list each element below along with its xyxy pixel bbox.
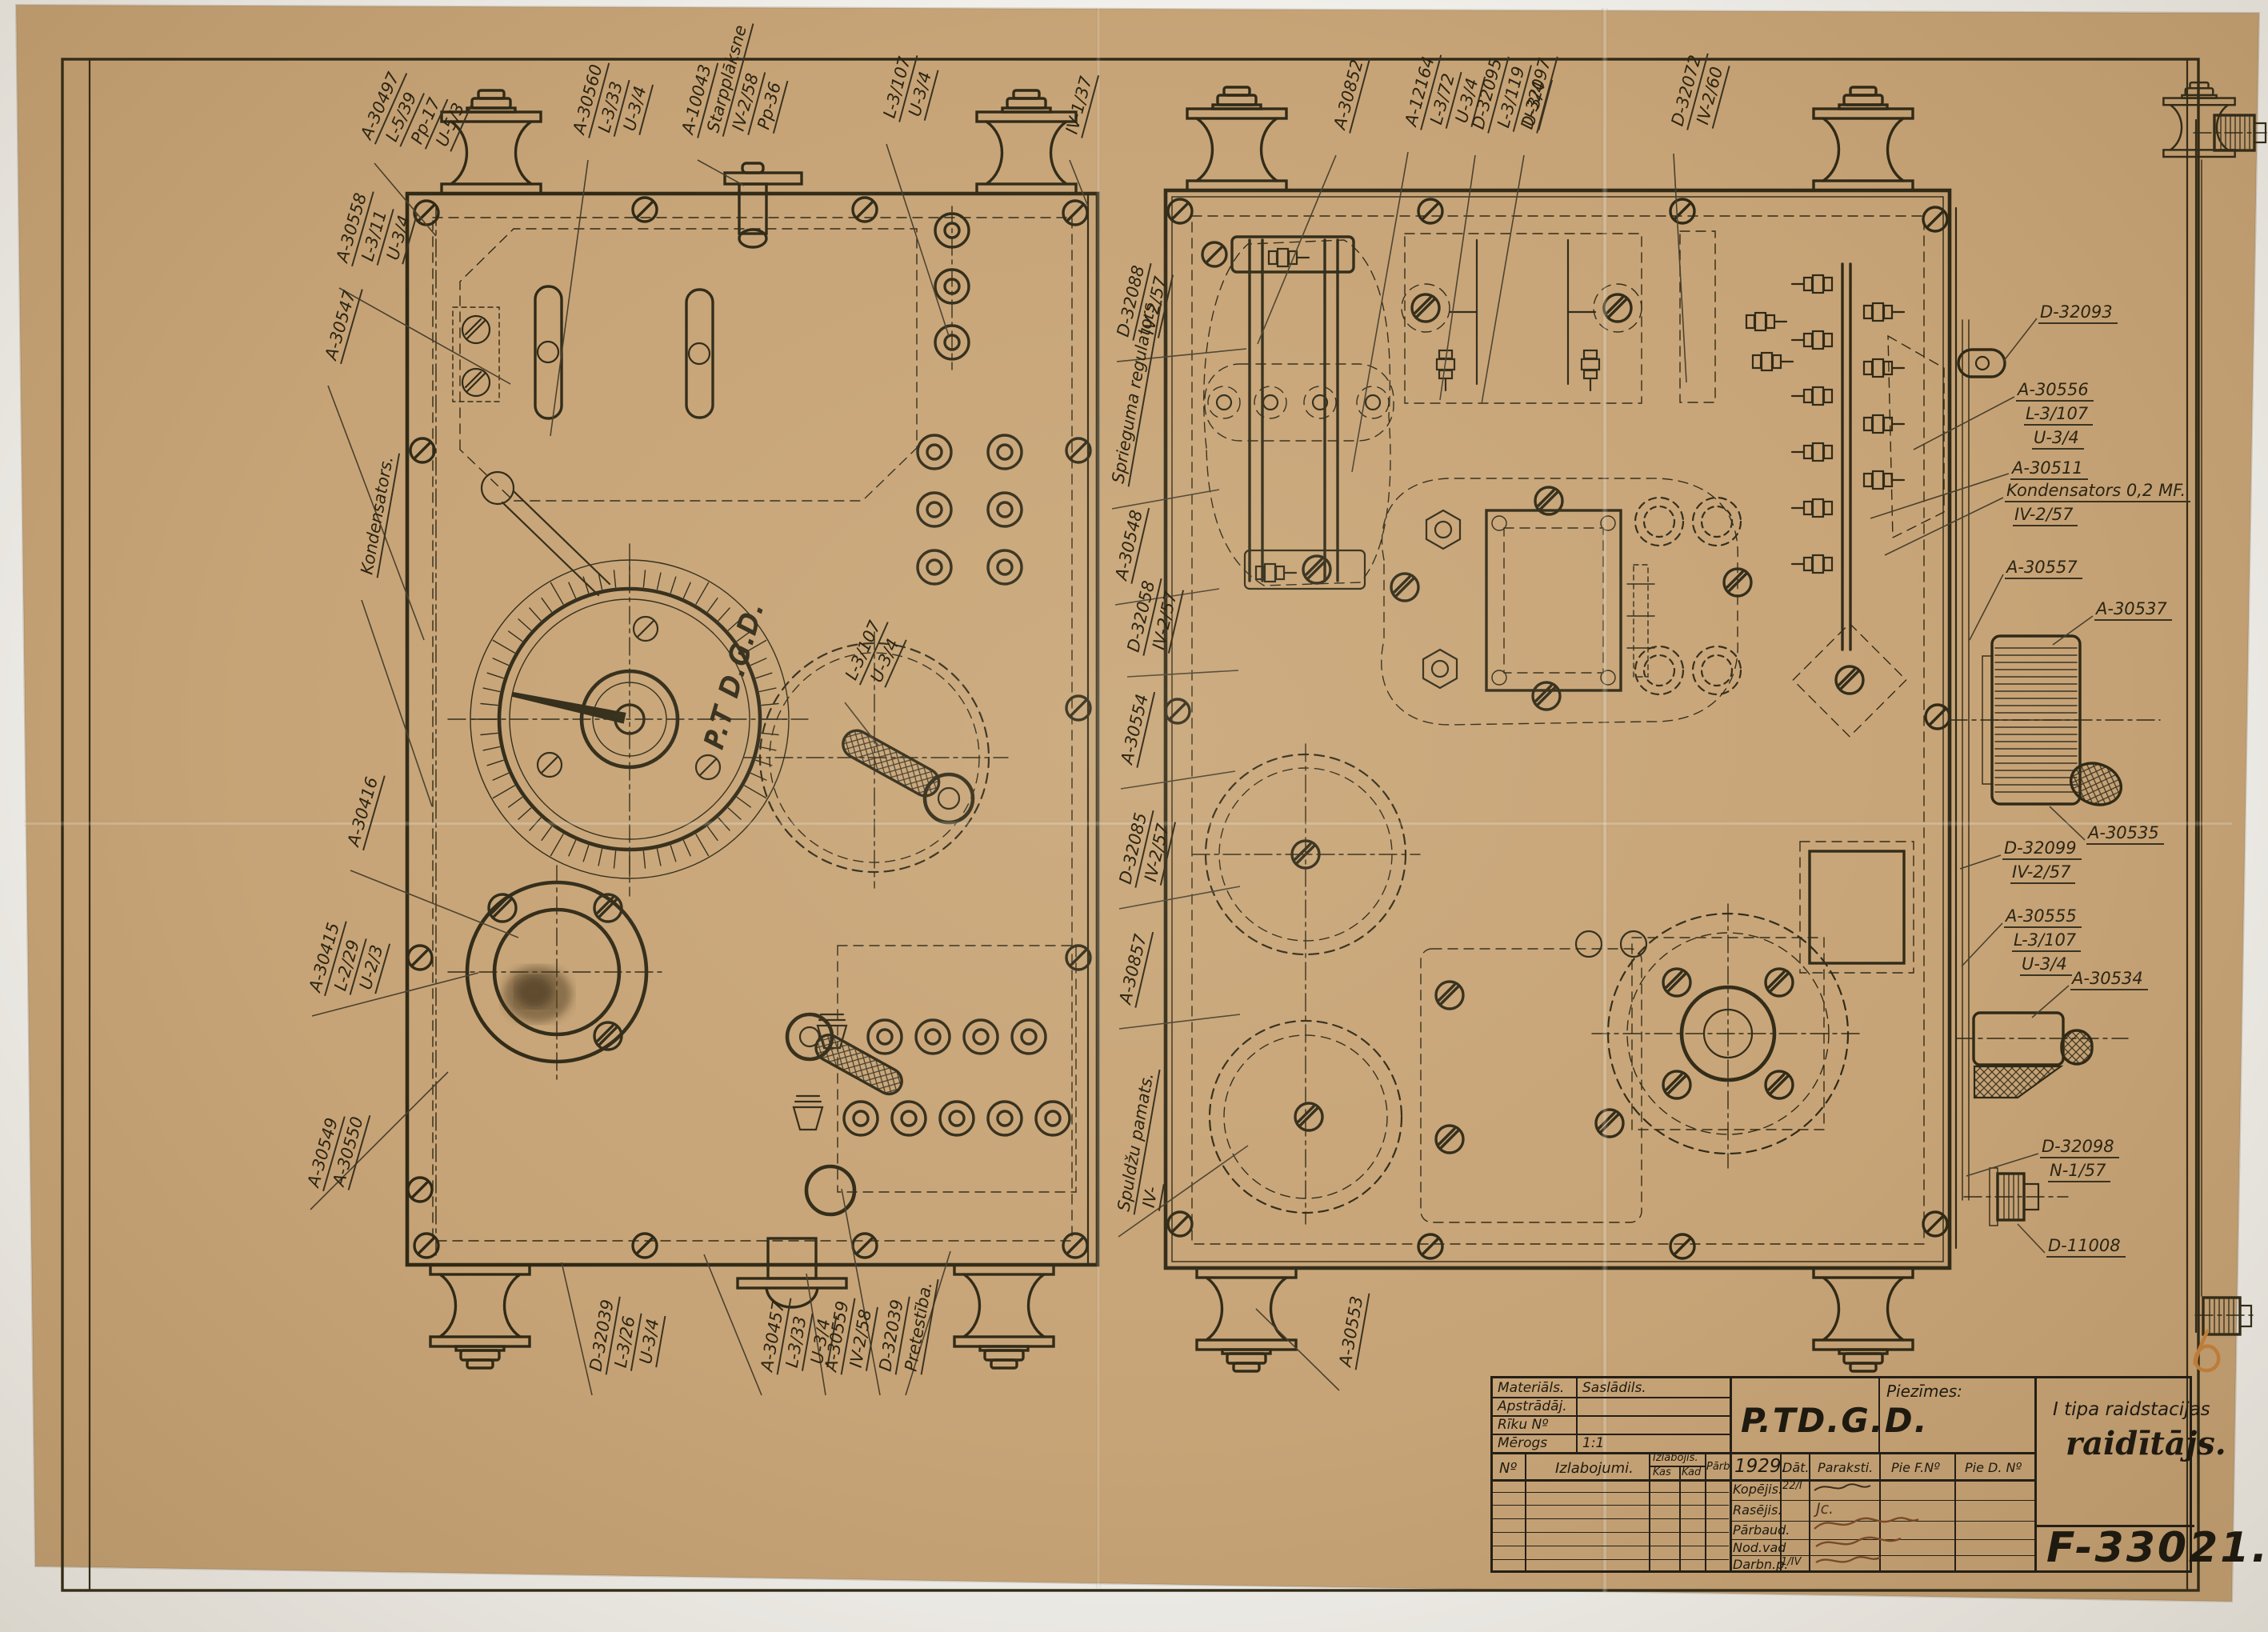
rev-parb: Pārb [1706,1461,1730,1473]
sign-row-label: Rasējis. [1733,1502,1782,1518]
rev-dat: Dāt. [1782,1460,1809,1475]
sign-row-label: Darbn.p. [1733,1557,1788,1572]
sign-row-label: Nod.vad [1733,1540,1786,1555]
rev-kas: Kas [1653,1466,1671,1478]
drawing-number: F-33021. [2046,1524,2268,1572]
piezimes-label: Piezīmes: [1886,1382,1962,1401]
rev-year: 1929. [1734,1456,1787,1477]
org-title: P.TD.G.D. [1741,1401,1929,1440]
merogs-value: 1:1 [1582,1435,1604,1451]
rev-izlabojumi: Izlabojumi. [1555,1460,1634,1477]
rev-no: Nº [1499,1460,1517,1477]
merogs-label: Mērogs [1498,1435,1547,1451]
series-line1: I tipa raidstacijas [2053,1399,2210,1420]
rev-kad: Kad [1682,1466,1701,1478]
series-line2: raidītājs. [2066,1425,2226,1462]
sign-row-date: 22/I [1782,1480,1802,1492]
rev-pie-f: Pie F.Nº [1891,1460,1940,1475]
rev-pie-d: Pie D. Nº [1965,1460,2022,1475]
scanned-blueprint-sheet: P.T D.G.D. [0,0,2268,1632]
signature-scribbles [1811,1479,2035,1575]
rev-izlabojis: Izlabojis. [1653,1452,1698,1464]
title-block: Materiāls. Saslādils. Apstrādāj. Rīku Nº… [1490,1376,2192,1573]
riku-label: Rīku Nº [1498,1417,1548,1433]
paper-sheet [16,5,2259,1602]
apstradaj-label: Apstrādāj. [1498,1398,1567,1414]
sign-row-label: Kopējis. [1733,1482,1782,1497]
rev-paraksti: Paraksti. [1818,1460,1873,1475]
materials-value: Saslādils. [1582,1380,1646,1396]
sign-row-label: Pārbaud. [1733,1522,1790,1538]
sign-row-date: 1/IV [1781,1556,1801,1568]
materials-label: Materiāls. [1498,1380,1564,1396]
